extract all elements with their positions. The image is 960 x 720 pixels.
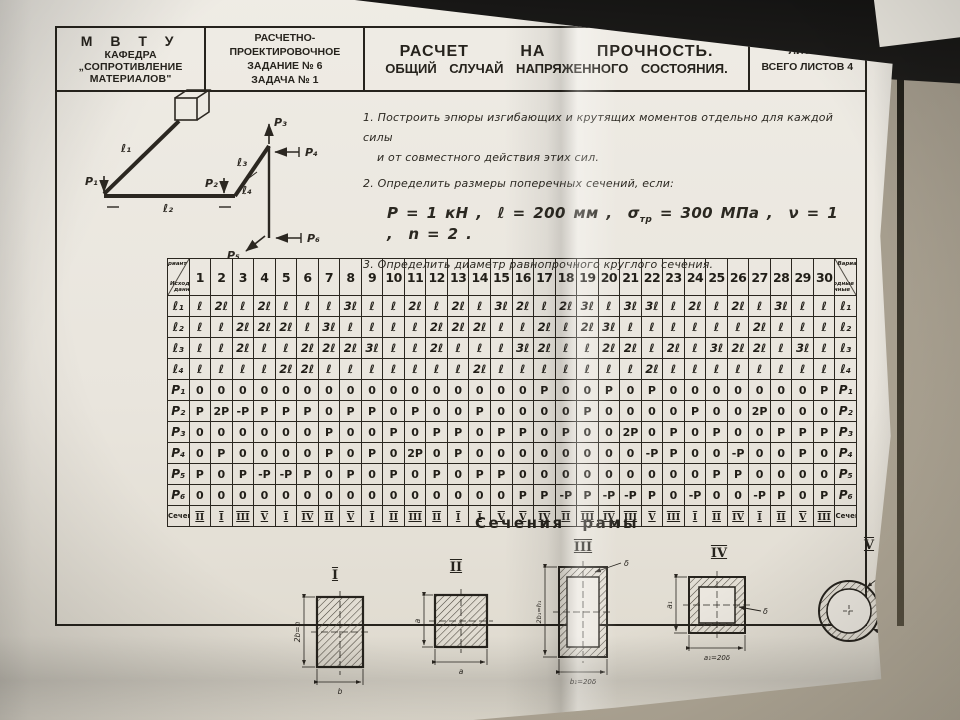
table-cell: P: [361, 401, 383, 422]
variants-table: ВариантИсходные данные123456789101112131…: [167, 258, 857, 527]
variant-number: 7: [318, 259, 340, 296]
table-cell: 2ℓ: [598, 338, 620, 359]
section4-thickness: δ: [763, 607, 768, 616]
table-cell: ℓ: [490, 338, 512, 359]
table-cell: ℓ: [404, 338, 426, 359]
table-cell: ℓ: [792, 317, 814, 338]
table-cell: P: [254, 401, 276, 422]
table-cell: 0: [275, 443, 297, 464]
table-cell: ℓ: [770, 338, 792, 359]
table-cell: ℓ: [275, 338, 297, 359]
row-label: P₄: [835, 443, 857, 464]
table-cell: P: [663, 422, 685, 443]
table-cell: P: [598, 380, 620, 401]
frame-diagram: ℓ₁ ℓ₂ ℓ₃ ℓ₄ P₁ P₂ P₃: [63, 86, 363, 269]
table-cell: 2ℓ: [254, 296, 276, 317]
table-cell: 0: [598, 443, 620, 464]
table-cell: 3ℓ: [318, 317, 340, 338]
section-roman-numeral: III: [236, 512, 249, 523]
row-label: ℓ₄: [168, 359, 190, 380]
table-cell: 2ℓ: [447, 317, 469, 338]
section-numeral-5: V: [864, 538, 874, 553]
row-label: P₆: [168, 485, 190, 506]
wall-edge-line: [897, 70, 904, 626]
table-cell: 0: [189, 443, 211, 464]
section-roman-numeral: III: [818, 512, 831, 523]
table-cell: 0: [232, 422, 254, 443]
table-cell: P: [727, 464, 749, 485]
task-number: ЗАДАНИЕ № 6: [247, 59, 322, 73]
assignment-paper: М В Т У КАФЕДРА „СОПРОТИВЛЕНИЕ МАТЕРИАЛО…: [0, 0, 920, 720]
table-cell: 0: [490, 401, 512, 422]
variant-number: 24: [684, 259, 706, 296]
table-cell: 0: [404, 464, 426, 485]
table-cell: 0: [297, 485, 319, 506]
table-cell: 3ℓ: [770, 296, 792, 317]
org-name: М В Т У: [81, 33, 181, 49]
table-cell: ℓ: [641, 317, 663, 338]
table-cell: ℓ: [577, 359, 599, 380]
variant-number: 16: [512, 259, 534, 296]
table-cell: ℓ: [189, 296, 211, 317]
diagram-p2-label: P₂: [205, 177, 218, 190]
table-cell: -P: [555, 485, 577, 506]
table-cell: P: [770, 422, 792, 443]
table-cell: ℓ: [211, 317, 233, 338]
section-drawing-I: I 2b=h b: [291, 568, 379, 701]
table-cell: 0: [254, 485, 276, 506]
table-cell: 2ℓ: [684, 296, 706, 317]
table-cell: 2P: [404, 443, 426, 464]
table-cell: IV: [297, 506, 319, 527]
diagram-l1-label: ℓ₁: [120, 142, 131, 155]
variant-number: 1: [189, 259, 211, 296]
table-cell: P: [297, 464, 319, 485]
table-cell: 0: [189, 422, 211, 443]
table-cell: 0: [813, 401, 835, 422]
table-cell: P: [792, 422, 814, 443]
table-cell: ℓ: [490, 359, 512, 380]
table-cell: 0: [620, 464, 642, 485]
row-label: ℓ₄: [835, 359, 857, 380]
table-cell: 0: [663, 380, 685, 401]
table-cell: 2ℓ: [663, 338, 685, 359]
corner-label-variant: Вариант: [168, 261, 187, 267]
table-cell: 2ℓ: [534, 317, 556, 338]
table-cell: 0: [512, 443, 534, 464]
table-cell: ℓ: [706, 296, 728, 317]
row-label: P₅: [168, 464, 190, 485]
table-cell: 2ℓ: [534, 338, 556, 359]
table-cell: ℓ: [620, 317, 642, 338]
table-cell: ℓ: [663, 317, 685, 338]
table-cell: 0: [490, 380, 512, 401]
section-drawing-II: II a a: [413, 560, 499, 681]
table-cell: ℓ: [641, 338, 663, 359]
table-cell: ℓ: [813, 317, 835, 338]
variant-number: 26: [727, 259, 749, 296]
variant-number: 11: [404, 259, 426, 296]
table-cell: 0: [383, 485, 405, 506]
table-cell: ℓ: [555, 338, 577, 359]
table-cell: ℓ: [598, 359, 620, 380]
table-cell: ℓ: [727, 359, 749, 380]
section-drawing-V: V dср=20δ δ: [805, 538, 933, 663]
diagram-p4-label: P₄: [305, 146, 318, 159]
table-cell: P: [297, 401, 319, 422]
table-cell: 0: [254, 380, 276, 401]
table-cell: 0: [663, 464, 685, 485]
table-cell: 0: [447, 485, 469, 506]
table-cell: 2P: [749, 401, 771, 422]
table-cell: 0: [727, 485, 749, 506]
photo-of-assignment-sheet: М В Т У КАФЕДРА „СОПРОТИВЛЕНИЕ МАТЕРИАЛО…: [0, 0, 960, 720]
table-cell: ℓ: [813, 359, 835, 380]
table-cell: 0: [770, 380, 792, 401]
variant-number: 3: [232, 259, 254, 296]
table-cell: ℓ: [684, 359, 706, 380]
table-corner-cell: ВариантИсходные данные: [168, 259, 190, 296]
table-cell: 0: [297, 443, 319, 464]
table-cell: 0: [706, 380, 728, 401]
table-cell: P: [383, 464, 405, 485]
table-cell: 0: [749, 464, 771, 485]
table-cell: 0: [361, 485, 383, 506]
table-cell: 0: [469, 380, 491, 401]
table-cell: 2ℓ: [577, 317, 599, 338]
table-cell: 0: [318, 485, 340, 506]
diagram-p6-label: P₆: [307, 232, 320, 245]
section3-dim-left: 2b₁=h₁: [535, 600, 543, 623]
table-cell: ℓ: [684, 317, 706, 338]
table-cell: ℓ: [813, 296, 835, 317]
table-cell: 0: [426, 485, 448, 506]
table-cell: 0: [383, 380, 405, 401]
variant-number: 29: [792, 259, 814, 296]
variant-number: 8: [340, 259, 362, 296]
section-roman-numeral: I: [284, 512, 288, 523]
section1-dim-bottom: b: [338, 687, 343, 696]
section-roman-numeral: V: [347, 512, 354, 523]
table-cell: ℓ: [232, 359, 254, 380]
table-cell: ℓ: [512, 359, 534, 380]
table-cell: P: [490, 464, 512, 485]
section-roman-numeral: V: [799, 512, 806, 523]
table-cell: ℓ: [706, 317, 728, 338]
table-cell: ℓ: [727, 317, 749, 338]
table-cell: ℓ: [254, 338, 276, 359]
table-cell: 3ℓ: [340, 296, 362, 317]
row-label: ℓ₃: [835, 338, 857, 359]
section-roman-numeral: II: [325, 512, 334, 523]
table-cell: -P: [275, 464, 297, 485]
table-cell: 0: [749, 422, 771, 443]
table-cell: 2ℓ: [297, 359, 319, 380]
variant-number: 12: [426, 259, 448, 296]
table-cell: 0: [297, 380, 319, 401]
diagram-p1-label: P₁: [85, 175, 98, 188]
table-cell: ℓ: [361, 359, 383, 380]
row-label: Сечения: [835, 506, 857, 527]
table-cell: 3ℓ: [641, 296, 663, 317]
table-cell: ℓ: [383, 296, 405, 317]
variant-number: 18: [555, 259, 577, 296]
table-cell: -P: [254, 464, 276, 485]
table-cell: 0: [792, 380, 814, 401]
table-cell: 2ℓ: [555, 296, 577, 317]
table-cell: ℓ: [684, 338, 706, 359]
table-cell: ℓ: [770, 317, 792, 338]
table-cell: 0: [297, 422, 319, 443]
table-cell: 2ℓ: [318, 338, 340, 359]
section-numeral-4: IV: [711, 546, 727, 561]
table-cell: ℓ: [555, 359, 577, 380]
table-cell: ℓ: [426, 359, 448, 380]
table-cell: 0: [211, 422, 233, 443]
table-cell: 3ℓ: [620, 296, 642, 317]
corner-label-data: Исходные данные: [835, 281, 854, 293]
table-cell: II: [318, 506, 340, 527]
table-cell: 2ℓ: [469, 317, 491, 338]
table-cell: I: [211, 506, 233, 527]
table-cell: P: [490, 422, 512, 443]
table-cell: 0: [469, 485, 491, 506]
table-cell: 0: [426, 401, 448, 422]
table-cell: 0: [383, 443, 405, 464]
variant-number: 21: [620, 259, 642, 296]
table-cell: -P: [641, 443, 663, 464]
diagram-l2-label: ℓ₂: [162, 202, 173, 215]
row-label: P₄: [168, 443, 190, 464]
table-cell: 0: [727, 380, 749, 401]
table-cell: V: [254, 506, 276, 527]
table-cell: 2ℓ: [426, 338, 448, 359]
table-cell: ℓ: [598, 296, 620, 317]
table-cell: ℓ: [275, 296, 297, 317]
table-cell: P: [641, 380, 663, 401]
section1-dim-left: 2b=h: [293, 621, 302, 642]
table-cell: 0: [340, 422, 362, 443]
table-cell: 0: [684, 380, 706, 401]
table-cell: 0: [620, 401, 642, 422]
table-cell: -P: [232, 401, 254, 422]
table-cell: P: [426, 422, 448, 443]
sections-row: I 2b=h b: [291, 538, 933, 701]
table-cell: 0: [512, 464, 534, 485]
table-cell: -P: [598, 485, 620, 506]
table-cell: 0: [490, 443, 512, 464]
table-cell: 0: [598, 401, 620, 422]
table-cell: ℓ: [297, 296, 319, 317]
table-cell: 0: [555, 401, 577, 422]
table-cell: 0: [770, 464, 792, 485]
table-cell: 0: [404, 422, 426, 443]
section4-dim-bottom: a₁=20δ: [704, 654, 730, 662]
task-list: 1. Построить эпюры изгибающих и крутящих…: [363, 108, 855, 282]
table-cell: 0: [211, 485, 233, 506]
table-cell: 0: [684, 443, 706, 464]
table-cell: ℓ: [663, 359, 685, 380]
variant-number: 9: [361, 259, 383, 296]
table-cell: 0: [577, 443, 599, 464]
table-cell: 2ℓ: [232, 317, 254, 338]
row-label: ℓ₂: [168, 317, 190, 338]
diagram-p3-label: P₃: [274, 116, 287, 129]
table-cell: ℓ: [749, 359, 771, 380]
variant-number: 20: [598, 259, 620, 296]
section4-dim-left: a₁: [667, 601, 674, 609]
variant-number: 27: [749, 259, 771, 296]
table-cell: 0: [469, 443, 491, 464]
table-cell: 0: [512, 380, 534, 401]
table-cell: ℓ: [383, 359, 405, 380]
table-cell: ℓ: [318, 296, 340, 317]
section5-thickness: δ: [900, 636, 905, 645]
variant-number: 10: [383, 259, 405, 296]
table-cell: 0: [813, 443, 835, 464]
table-cell: ℓ: [447, 359, 469, 380]
table-cell: ℓ: [577, 338, 599, 359]
table-cell: ℓ: [512, 317, 534, 338]
variant-number: 13: [447, 259, 469, 296]
table-cell: ℓ: [813, 338, 835, 359]
diagram-l3-label: ℓ₃: [236, 156, 247, 169]
table-cell: ℓ: [254, 359, 276, 380]
table-cell: ℓ: [555, 317, 577, 338]
table-cell: -P: [727, 443, 749, 464]
table-cell: 0: [684, 422, 706, 443]
section-roman-numeral: IV: [302, 512, 314, 523]
table-cell: 0: [426, 443, 448, 464]
table-cell: 0: [663, 485, 685, 506]
table-cell: ℓ: [211, 338, 233, 359]
table-cell: 0: [770, 401, 792, 422]
task-type: РАСЧЕТНО-ПРОЕКТИРОВОЧНОЕ: [206, 31, 363, 59]
row-label: P₆: [835, 485, 857, 506]
table-cell: 0: [577, 422, 599, 443]
sheet-total: ВСЕГО ЛИСТОВ 4: [762, 59, 854, 75]
table-cell: P: [275, 401, 297, 422]
table-cell: 2ℓ: [641, 359, 663, 380]
table-cell: 0: [340, 485, 362, 506]
table-cell: V: [792, 506, 814, 527]
table-cell: ℓ: [340, 317, 362, 338]
table-cell: ℓ: [318, 359, 340, 380]
table-cell: P: [534, 380, 556, 401]
table-cell: ℓ: [534, 296, 556, 317]
table-cell: 0: [426, 380, 448, 401]
row-label: ℓ₁: [168, 296, 190, 317]
table-cell: -P: [749, 485, 771, 506]
variant-number: 25: [706, 259, 728, 296]
table-cell: ℓ: [749, 296, 771, 317]
section-drawing-IV: IV a₁ a₁=20δ: [667, 546, 771, 675]
row-label: ℓ₁: [835, 296, 857, 317]
table-cell: 0: [555, 464, 577, 485]
table-cell: ℓ: [189, 317, 211, 338]
task-item-1: 1. Построить эпюры изгибающих и крутящих…: [363, 108, 855, 167]
table-cell: 0: [211, 380, 233, 401]
table-cell: 2ℓ: [297, 338, 319, 359]
variant-number: 6: [297, 259, 319, 296]
table-cell: I: [275, 506, 297, 527]
task-item-2: 2. Определить размеры поперечных сечений…: [363, 174, 855, 194]
variants-table-wrap: ВариантИсходные данные123456789101112131…: [167, 258, 857, 527]
table-cell: 3ℓ: [792, 338, 814, 359]
variant-number: 19: [577, 259, 599, 296]
table-cell: ℓ: [792, 359, 814, 380]
variant-number: 22: [641, 259, 663, 296]
table-cell: 2ℓ: [211, 296, 233, 317]
table-cell: ℓ: [534, 359, 556, 380]
variant-number: 5: [275, 259, 297, 296]
table-cell: P: [706, 422, 728, 443]
variant-number: 14: [469, 259, 491, 296]
table-cell: 2ℓ: [727, 296, 749, 317]
section-roman-numeral: I: [757, 512, 761, 523]
section-roman-numeral: V: [261, 512, 268, 523]
table-corner-cell: ВариантИсходные данные: [835, 259, 857, 296]
table-cell: P: [770, 485, 792, 506]
table-cell: 0: [534, 401, 556, 422]
table-cell: 2ℓ: [447, 296, 469, 317]
drawing-frame: М В Т У КАФЕДРА „СОПРОТИВЛЕНИЕ МАТЕРИАЛО…: [55, 26, 867, 626]
table-cell: ℓ: [469, 296, 491, 317]
table-cell: 0: [275, 422, 297, 443]
table-cell: 0: [447, 380, 469, 401]
table-cell: P: [318, 422, 340, 443]
table-cell: 0: [706, 485, 728, 506]
table-cell: 0: [211, 464, 233, 485]
table-cell: 0: [318, 380, 340, 401]
table-cell: 2ℓ: [232, 338, 254, 359]
table-cell: ℓ: [770, 359, 792, 380]
table-cell: ℓ: [361, 317, 383, 338]
table-cell: ℓ: [447, 338, 469, 359]
table-cell: P: [189, 401, 211, 422]
org-dept-line2: МАТЕРИАЛОВ": [90, 73, 172, 85]
table-cell: ℓ: [361, 296, 383, 317]
table-cell: 0: [620, 443, 642, 464]
table-cell: ℓ: [404, 359, 426, 380]
row-label: P₂: [168, 401, 190, 422]
table-cell: 0: [447, 464, 469, 485]
table-cell: 0: [361, 464, 383, 485]
table-cell: P: [383, 422, 405, 443]
table-cell: ℓ: [211, 359, 233, 380]
table-cell: 0: [232, 485, 254, 506]
table-cell: 0: [641, 401, 663, 422]
table-cell: 0: [447, 401, 469, 422]
table-cell: P: [792, 443, 814, 464]
section-numeral-1: I: [332, 568, 338, 583]
table-cell: 0: [598, 464, 620, 485]
table-cell: P: [512, 422, 534, 443]
table-cell: 2ℓ: [275, 317, 297, 338]
table-cell: ℓ: [469, 338, 491, 359]
table-cell: 0: [749, 443, 771, 464]
table-cell: P: [340, 464, 362, 485]
table-cell: 0: [340, 443, 362, 464]
table-cell: P: [469, 401, 491, 422]
table-cell: 2ℓ: [749, 338, 771, 359]
table-cell: III: [813, 506, 835, 527]
table-cell: 0: [641, 422, 663, 443]
section3-thickness: δ: [624, 559, 629, 568]
table-cell: 2ℓ: [749, 317, 771, 338]
section-roman-numeral: I: [219, 512, 223, 523]
table-cell: ℓ: [340, 359, 362, 380]
